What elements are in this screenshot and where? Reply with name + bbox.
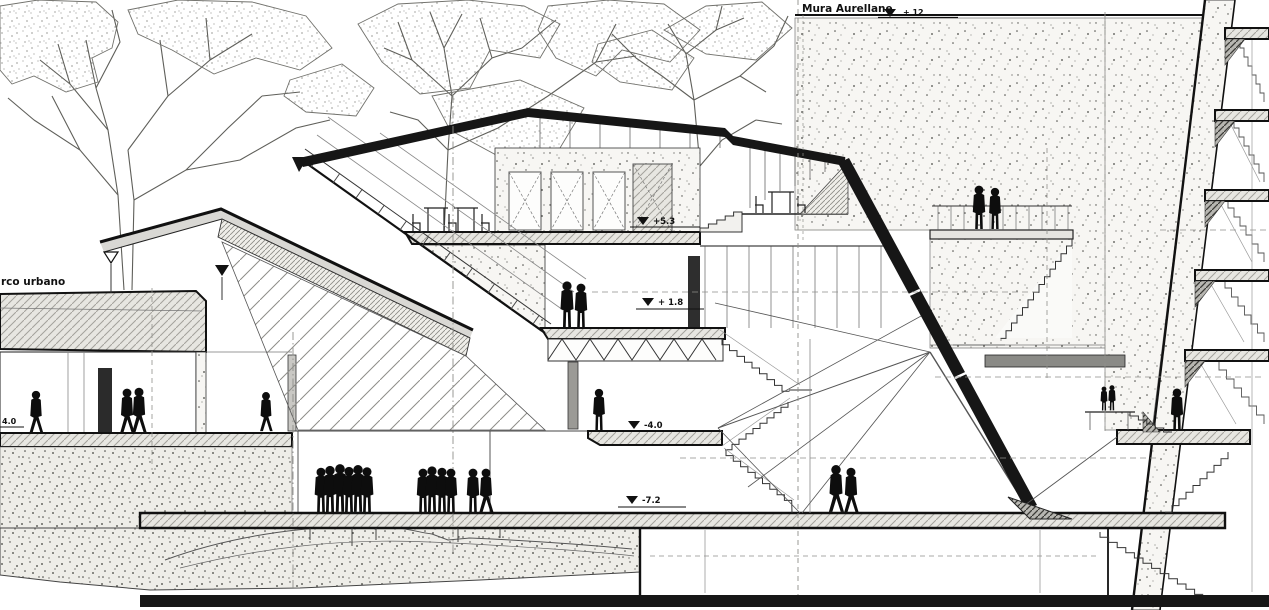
canopy-support-marker-2 xyxy=(215,265,229,276)
left-pier xyxy=(196,352,206,433)
marker-minus72: -7.2 xyxy=(618,496,686,507)
left-floor-slab xyxy=(0,433,292,447)
tree-canopy xyxy=(0,0,792,156)
left-roof-slab xyxy=(0,291,206,352)
svg-text:4.0: 4.0 xyxy=(2,417,17,426)
stair-plus53 xyxy=(700,212,742,232)
slab-plus18 xyxy=(541,328,725,339)
canopy-support-marker xyxy=(104,252,118,263)
section-drawing: Mura Aurellane + 12 rco urbano +5.3 + 1.… xyxy=(0,0,1269,610)
section-drawing-page: Mura Aurellane + 12 rco urbano +5.3 + 1.… xyxy=(0,0,1269,610)
figure-minus40 xyxy=(593,389,605,430)
wall-face xyxy=(795,18,1203,430)
svg-text:-7.2: -7.2 xyxy=(642,496,661,506)
cafe-furniture-upper xyxy=(412,208,489,231)
interior-stairs xyxy=(722,339,812,513)
slab-minus40 xyxy=(588,431,722,445)
wall-top-elevation: + 12 xyxy=(903,8,924,17)
svg-text:+5.3: +5.3 xyxy=(653,217,675,227)
crowd-plaza xyxy=(315,464,494,512)
slab-plus53 xyxy=(405,232,700,244)
wall-name-label: Mura Aurellane xyxy=(802,3,893,15)
marker-minus40: -4.0 xyxy=(620,421,690,431)
park-label: rco urbano xyxy=(1,276,65,288)
wall-walkway xyxy=(930,230,1073,239)
bottom-slab-band xyxy=(140,595,1269,607)
svg-text:-4.0: -4.0 xyxy=(644,421,663,431)
couple-terrace-plus18 xyxy=(560,281,587,327)
aurelian-wall xyxy=(795,15,1215,430)
park-label-group: rco urbano xyxy=(1,276,65,288)
svg-text:+ 1.8: + 1.8 xyxy=(658,298,683,308)
interior-column xyxy=(568,362,578,429)
couple-walking-plaza xyxy=(829,465,859,512)
left-door xyxy=(98,368,112,433)
terrace-slab-dark xyxy=(985,355,1125,367)
glass-wall-mullions xyxy=(700,246,893,328)
soil-lower xyxy=(0,528,640,590)
ground xyxy=(0,447,1269,607)
